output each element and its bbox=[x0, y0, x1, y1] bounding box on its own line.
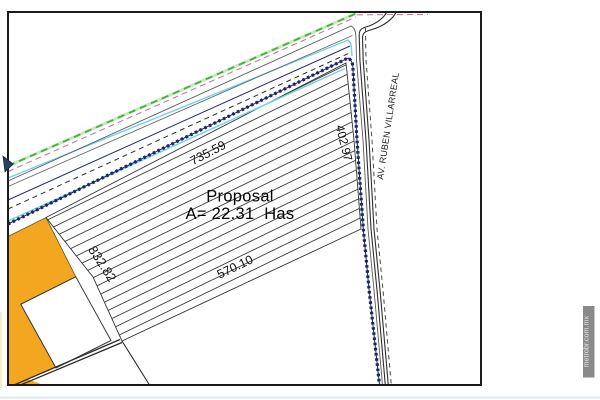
svg-text:metrobr.com.mx: metrobr.com.mx bbox=[582, 316, 591, 368]
svg-text:Proposal: Proposal bbox=[206, 188, 274, 206]
svg-text:A= 22.31 Has: A= 22.31 Has bbox=[186, 205, 295, 223]
